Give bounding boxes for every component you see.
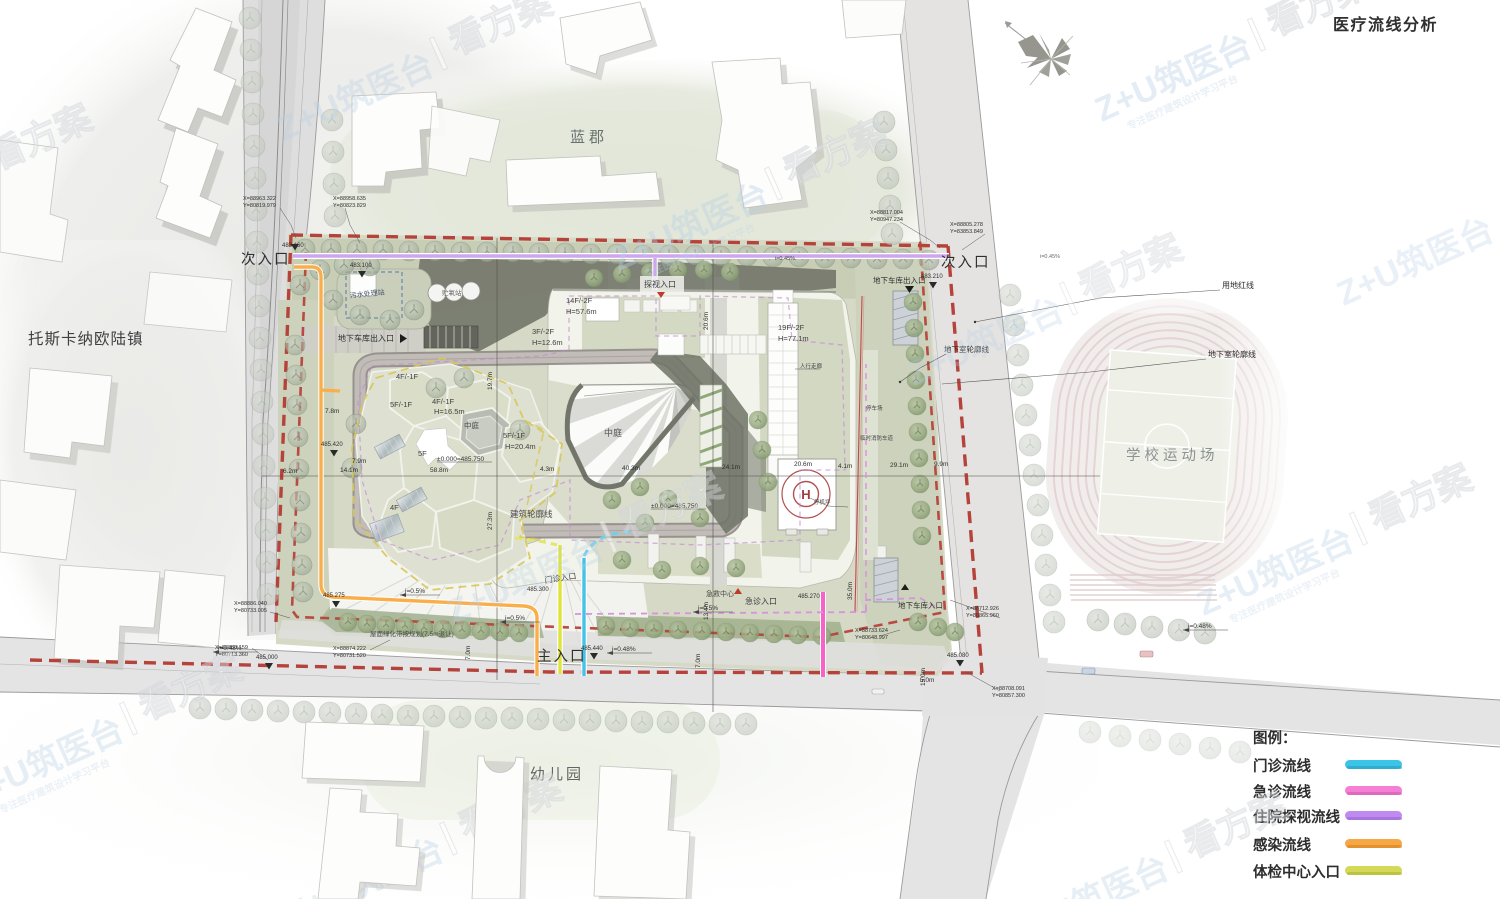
svg-text:5F/-1F: 5F/-1F — [390, 400, 413, 409]
svg-text:483.160: 483.160 — [282, 243, 304, 249]
svg-text:X=88805.278: X=88805.278 — [950, 222, 983, 228]
svg-text:地下室轮廓线: 地下室轮廓线 — [1208, 349, 1256, 359]
svg-text:485.080: 485.080 — [947, 653, 969, 659]
svg-text:7.8m: 7.8m — [325, 408, 339, 415]
svg-text:停车场: 停车场 — [866, 404, 883, 412]
svg-text:40.3m: 40.3m — [622, 465, 640, 472]
svg-text:X=88874.222: X=88874.222 — [333, 646, 366, 652]
svg-text:7.9m: 7.9m — [352, 458, 366, 465]
svg-text:i=0.48%: i=0.48% — [612, 646, 636, 653]
svg-text:485.420: 485.420 — [321, 442, 343, 448]
svg-text:Y=80857.300: Y=80857.300 — [992, 693, 1025, 699]
svg-text:Y=80819.979: Y=80819.979 — [243, 203, 276, 209]
svg-text:用地红线: 用地红线 — [1222, 280, 1254, 290]
svg-text:临时消防车道: 临时消防车道 — [860, 434, 894, 442]
svg-text:4F/-1F: 4F/-1F — [432, 397, 455, 406]
svg-text:X=88958.635: X=88958.635 — [333, 196, 366, 202]
svg-text:14F/-2F: 14F/-2F — [566, 296, 593, 305]
svg-text:i=0.48%: i=0.48% — [1188, 623, 1212, 630]
svg-text:H=20.4m: H=20.4m — [505, 442, 536, 451]
svg-text:建筑轮廓线: 建筑轮廓线 — [510, 509, 553, 519]
svg-text:学校运动场: 学校运动场 — [1126, 447, 1219, 464]
svg-text:H=57.6m: H=57.6m — [566, 307, 597, 316]
svg-text:19.7m: 19.7m — [487, 372, 494, 390]
svg-text:急救中心: 急救中心 — [706, 589, 734, 598]
svg-text:14.1m: 14.1m — [340, 467, 358, 474]
svg-text:感染流线: 感染流线 — [1253, 836, 1311, 854]
svg-text:3F/-2F: 3F/-2F — [532, 327, 555, 336]
svg-text:4F: 4F — [390, 503, 399, 512]
svg-text:Y=80947.234: Y=80947.234 — [870, 217, 903, 223]
svg-text:Y=80823.829: Y=80823.829 — [333, 203, 366, 209]
svg-text:5F: 5F — [418, 449, 427, 458]
svg-text:7.0m: 7.0m — [695, 654, 702, 668]
svg-text:20.6m: 20.6m — [703, 312, 710, 330]
svg-text:Y=83853.849: Y=83853.849 — [950, 229, 983, 235]
svg-text:485.275: 485.275 — [323, 593, 345, 599]
svg-text:医疗流线分析: 医疗流线分析 — [1333, 15, 1438, 34]
svg-text:X=88963.322: X=88963.322 — [243, 196, 276, 202]
svg-text:19F/-2F: 19F/-2F — [778, 323, 805, 332]
svg-text:6.2m: 6.2m — [283, 468, 297, 475]
svg-text:托斯卡纳欧陆镇: 托斯卡纳欧陆镇 — [28, 330, 144, 348]
svg-text:Y=80733.005: Y=80733.005 — [234, 608, 267, 614]
svg-text:急诊入口: 急诊入口 — [745, 596, 777, 606]
svg-text:中庭: 中庭 — [464, 420, 479, 430]
svg-text:地下车库出入口: 地下车库出入口 — [873, 275, 926, 285]
svg-text:5.0m: 5.0m — [920, 677, 934, 684]
svg-text:485.270: 485.270 — [798, 594, 820, 600]
svg-text:485.000: 485.000 — [256, 655, 278, 661]
svg-text:H=16.5m: H=16.5m — [434, 407, 465, 416]
svg-text:20.6m: 20.6m — [794, 461, 812, 468]
svg-text:4.1m: 4.1m — [838, 463, 852, 470]
svg-text:图例：: 图例： — [1253, 729, 1297, 747]
svg-text:次入口: 次入口 — [241, 251, 291, 268]
svg-text:i=0.5%: i=0.5% — [698, 605, 718, 612]
svg-text:主入口: 主入口 — [537, 648, 587, 665]
svg-text:地下车库出入口: 地下车库出入口 — [338, 333, 394, 343]
svg-text:中庭: 中庭 — [604, 427, 622, 438]
svg-text:i=0.5%: i=0.5% — [405, 588, 425, 595]
svg-text:贮氧站: 贮氧站 — [442, 288, 462, 297]
svg-text:483.100: 483.100 — [350, 263, 372, 269]
svg-text:门诊流线: 门诊流线 — [1253, 757, 1311, 775]
svg-text:i=0.5%: i=0.5% — [505, 615, 525, 622]
svg-text:29.1m: 29.1m — [890, 462, 908, 469]
svg-text:X=88708.091: X=88708.091 — [992, 686, 1025, 692]
svg-text:i=0.45%: i=0.45% — [1040, 254, 1060, 260]
svg-text:地下车库入口: 地下车库入口 — [898, 600, 943, 610]
svg-text:35.0m: 35.0m — [847, 582, 854, 600]
svg-text:58.8m: 58.8m — [430, 467, 448, 474]
svg-text:蓝郡: 蓝郡 — [570, 129, 608, 146]
svg-text:Y=80731.520: Y=80731.520 — [333, 653, 366, 659]
svg-text:次入口: 次入口 — [941, 254, 991, 271]
svg-text:X=88886.040: X=88886.040 — [234, 601, 267, 607]
svg-text:24.1m: 24.1m — [722, 464, 740, 471]
svg-text:7.0m: 7.0m — [465, 646, 472, 660]
svg-text:4.3m: 4.3m — [540, 466, 554, 473]
svg-text:体检中心入口: 体检中心入口 — [1253, 863, 1340, 881]
svg-text:X=88712.926: X=88712.926 — [966, 606, 999, 612]
svg-text:停机坪: 停机坪 — [814, 498, 831, 506]
svg-text:Y=80648.997: Y=80648.997 — [855, 635, 888, 641]
svg-text:27.3m: 27.3m — [487, 512, 494, 530]
svg-text:4F/-1F: 4F/-1F — [396, 372, 419, 381]
svg-text:屋面绿化带按规划(7.5m退让): 屋面绿化带按规划(7.5m退让) — [370, 629, 454, 638]
svg-text:H=12.6m: H=12.6m — [532, 338, 563, 347]
svg-text:H=77.1m: H=77.1m — [778, 334, 809, 343]
svg-text:5F/-1F: 5F/-1F — [503, 431, 526, 440]
svg-text:X=88733.624: X=88733.624 — [855, 628, 888, 634]
svg-text:483.210: 483.210 — [921, 274, 943, 280]
svg-text:X=88817.004: X=88817.004 — [870, 210, 903, 216]
svg-text:9.9m: 9.9m — [934, 461, 948, 468]
svg-text:H: H — [801, 487, 810, 502]
svg-text:i=0.45%: i=0.45% — [775, 256, 795, 262]
